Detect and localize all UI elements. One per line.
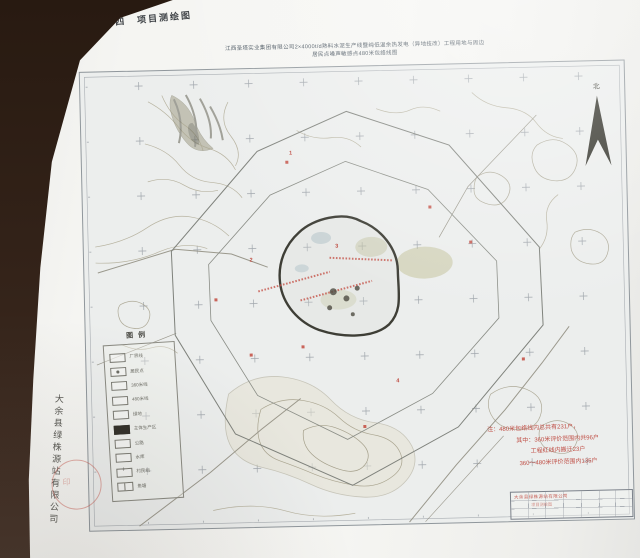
legend-swatch — [110, 367, 127, 377]
photo-of-survey-map-document: 附图十四 项目测绘图 江西圣塔实业集团有限公司2×4000t/d熟料水泥生产线暨… — [0, 0, 640, 558]
legend-swatch — [112, 396, 129, 406]
legend-item: 鱼塘 — [117, 477, 179, 495]
north-arrow: 北 — [580, 81, 616, 175]
red-note: 注：480米包络线内总共有231户， 其中：360米评价范围内共96户 工程红线… — [481, 420, 635, 472]
legend-swatch — [115, 453, 132, 463]
map-marker-number: 4 — [396, 378, 399, 384]
legend-box: 厂界线 居民点 360米线 480米线 — [103, 341, 184, 502]
title-block-table: 大余县绿株源站有限公司 项目测绘图 — [510, 489, 634, 520]
legend-swatch — [116, 468, 133, 478]
legend-swatch — [114, 425, 131, 435]
north-arrow-icon — [582, 91, 614, 170]
legend-swatch — [117, 482, 134, 492]
legend: 图例 厂界线 居民点 360米线 — [102, 328, 184, 502]
drawing-sheet: 附图十四 项目测绘图 江西圣塔实业集团有限公司2×4000t/d熟料水泥生产线暨… — [0, 0, 640, 558]
map-marker-number: 2 — [249, 258, 252, 264]
legend-swatch — [111, 381, 128, 391]
legend-swatch — [113, 410, 130, 420]
paper-sheet: 附图十四 项目测绘图 江西圣塔实业集团有限公司2×4000t/d熟料水泥生产线暨… — [0, 0, 640, 558]
map-marker-number: 1 — [289, 151, 292, 157]
legend-swatch — [109, 353, 126, 363]
seal-glyphs: 印 — [62, 477, 71, 488]
legend-swatch — [115, 439, 132, 449]
map-marker-number: 3 — [335, 244, 338, 250]
